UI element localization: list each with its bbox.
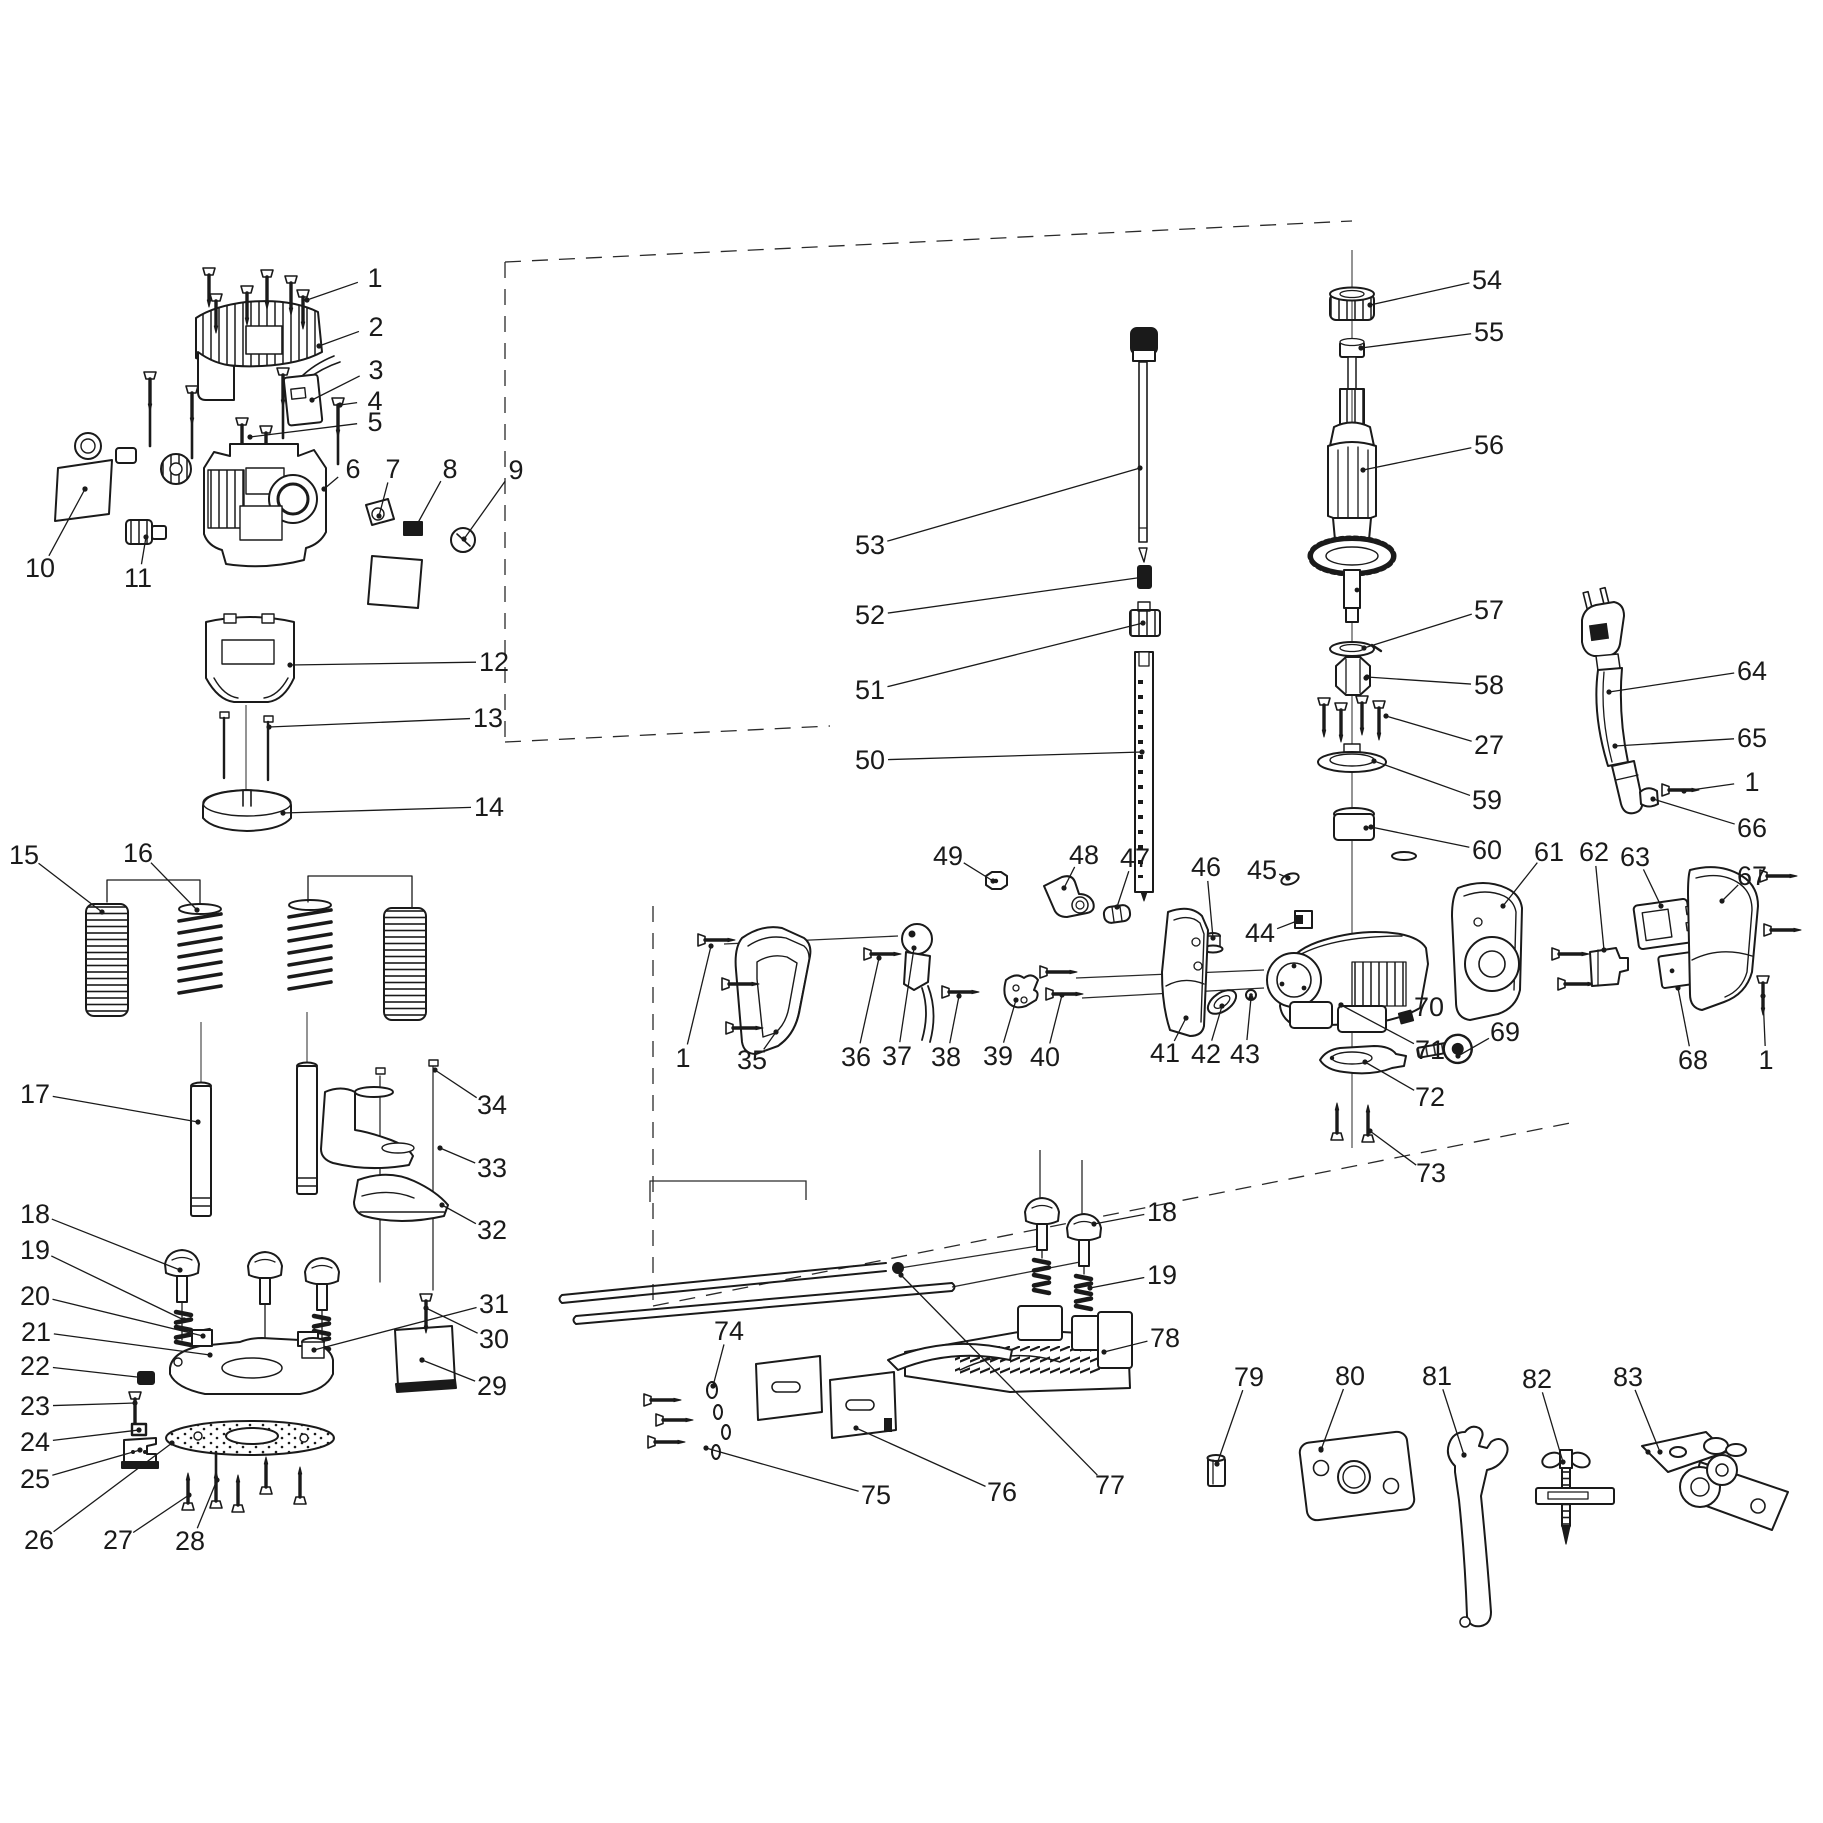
part-cord-clamp-66	[1640, 784, 1699, 807]
callout-dot-13-12	[266, 724, 271, 729]
callout-leader-66-68	[1653, 799, 1735, 824]
callout-dot-24-23	[136, 1427, 141, 1432]
callout-dot-54-54	[1367, 302, 1372, 307]
callout-label-72-75: 72	[1415, 1082, 1445, 1112]
callout-leader-1-67	[1684, 784, 1734, 791]
callout-dot-79-84	[1214, 1461, 1219, 1466]
callout-dot-80-85	[1318, 1447, 1323, 1452]
motor-top-assembly	[55, 268, 475, 831]
part-depth-rod	[1131, 328, 1157, 562]
part-power-cord	[1582, 588, 1642, 814]
callout-dot-62-63	[1601, 947, 1606, 952]
brush-parts	[366, 499, 475, 552]
callout-dot-81-86	[1461, 1452, 1466, 1457]
callout-label-77-83: 77	[1095, 1470, 1125, 1500]
part-spring-19d	[1076, 1276, 1091, 1309]
part-guide-body-78	[888, 1306, 1132, 1392]
callout-label-13-12: 13	[473, 703, 503, 733]
callout-dot-8-7	[411, 527, 416, 532]
part-clip-39	[1004, 975, 1038, 1007]
part-spring-15b	[384, 908, 426, 1020]
callout-leader-50-50	[888, 752, 1142, 760]
sub-base-screws	[182, 1452, 306, 1512]
callout-dot-60-61	[1368, 824, 1373, 829]
part-inner-handle-61	[1452, 883, 1522, 1020]
callout-dot-39-39	[1013, 997, 1018, 1002]
callout-dot-77-83	[898, 1272, 903, 1277]
callout-dot-76-82	[853, 1425, 858, 1430]
callout-leader-79-84	[1217, 1390, 1243, 1464]
callout-dot-9-8	[461, 536, 466, 541]
callout-leader-82-87	[1542, 1392, 1563, 1462]
callout-leader-64-65	[1609, 673, 1734, 692]
callout-label-27-26: 27	[103, 1525, 133, 1555]
callout-dot-26-25	[169, 1440, 174, 1445]
callout-dot-17-16	[195, 1119, 200, 1124]
callout-label-38-38: 38	[931, 1042, 961, 1072]
callout-dot-1-0	[304, 297, 309, 302]
callout-label-17-16: 17	[20, 1079, 50, 1109]
callout-leader-68-70	[1678, 988, 1689, 1046]
callout-leader-12-11	[290, 662, 476, 665]
callout-dot-42-42	[1219, 1003, 1224, 1008]
callout-leader-47-47	[1117, 871, 1129, 907]
callout-leader-51-51	[887, 623, 1143, 687]
callout-dot-19-18	[181, 1317, 186, 1322]
callout-dot-2-1	[316, 343, 321, 348]
callout-dot-48-48	[1061, 885, 1066, 890]
callout-label-2-1: 2	[368, 312, 383, 342]
callout-label-44-44: 44	[1245, 918, 1275, 948]
callout-dot-27-26	[186, 1492, 191, 1497]
callout-label-18-17: 18	[20, 1199, 50, 1229]
callout-label-15-14: 15	[9, 840, 39, 870]
callout-label-74-80: 74	[714, 1316, 744, 1346]
callout-dot-56-56	[1360, 467, 1365, 472]
callout-dot-40-40	[1059, 992, 1064, 997]
callout-dot-28-27	[214, 1477, 219, 1482]
callout-label-36-36: 36	[841, 1042, 871, 1072]
callout-leader-32-31	[442, 1205, 476, 1224]
callout-dot-44-44	[1294, 918, 1299, 923]
callout-label-64-65: 64	[1737, 656, 1767, 686]
callout-dot-25-24	[137, 1447, 142, 1452]
callout-dot-75-81	[703, 1445, 708, 1450]
callout-label-41-41: 41	[1150, 1038, 1180, 1068]
callout-dot-1-35	[708, 943, 713, 948]
callout-leader-19-78	[1090, 1277, 1144, 1288]
callout-label-68-70: 68	[1678, 1045, 1708, 1075]
callout-dot-1-67	[1681, 788, 1686, 793]
callout-label-8-7: 8	[442, 454, 457, 484]
callout-label-1-71: 1	[1758, 1045, 1773, 1075]
callout-label-45-45: 45	[1247, 855, 1277, 885]
part-bearing-60	[1334, 808, 1374, 840]
callout-label-65-66: 65	[1737, 723, 1767, 753]
callout-label-59-60: 59	[1472, 785, 1502, 815]
callout-leader-27-59	[1386, 716, 1472, 741]
callout-dot-72-75	[1362, 1059, 1367, 1064]
callout-dot-53-53	[1137, 465, 1142, 470]
callout-label-19-18: 19	[20, 1235, 50, 1265]
part-dust-chute-lower	[354, 1175, 448, 1221]
callout-label-33-32: 33	[477, 1153, 507, 1183]
callout-dot-68-70	[1675, 985, 1680, 990]
callout-label-9-8: 9	[508, 455, 523, 485]
callout-label-20-19: 20	[20, 1281, 50, 1311]
callout-dot-70-73	[1404, 1013, 1409, 1018]
part-screw-36	[864, 948, 901, 960]
part-block-62	[1590, 948, 1628, 986]
accessories	[1208, 1427, 1789, 1627]
callout-leader-74-80	[713, 1344, 724, 1386]
part-nut-49	[986, 872, 1007, 889]
callout-dot-78-79	[1101, 1349, 1106, 1354]
callout-label-32-31: 32	[477, 1215, 507, 1245]
callout-label-67-69: 67	[1737, 861, 1767, 891]
part-base-casting	[170, 1330, 333, 1394]
callout-leader-18-77	[1094, 1214, 1144, 1224]
callout-dot-29-28	[419, 1357, 424, 1362]
callout-leader-56-56	[1363, 448, 1471, 470]
part-trammel-82	[1536, 1450, 1614, 1544]
callout-dot-65-66	[1612, 743, 1617, 748]
callout-dot-67-69	[1719, 898, 1724, 903]
callout-dot-38-38	[956, 993, 961, 998]
part-handle-left-35	[736, 927, 811, 1054]
callout-leader-52-52	[888, 577, 1144, 613]
callout-label-16-15: 16	[123, 838, 153, 868]
callout-dot-58-58	[1364, 674, 1369, 679]
callout-leader-16-15	[151, 863, 197, 910]
callout-leader-22-21	[53, 1368, 146, 1378]
callout-label-56-56: 56	[1474, 430, 1504, 460]
callout-leader-54-54	[1370, 283, 1469, 305]
callout-dot-46-46	[1210, 935, 1215, 940]
callout-label-70-73: 70	[1414, 992, 1444, 1022]
callout-leader-75-81	[706, 1448, 859, 1491]
callout-label-35-34: 35	[737, 1045, 767, 1075]
callout-dot-71-74	[1338, 1002, 1343, 1007]
callout-label-51-51: 51	[855, 675, 885, 705]
callout-dot-1-71	[1760, 993, 1765, 998]
callout-dot-74-80	[710, 1383, 715, 1388]
callout-label-54-54: 54	[1472, 265, 1502, 295]
plunge-base-assembly	[86, 876, 456, 1512]
callout-label-27-59: 27	[1474, 730, 1504, 760]
callout-label-1-35: 1	[675, 1043, 690, 1073]
callout-leader-24-23	[53, 1430, 139, 1440]
callout-leader-18-17	[52, 1219, 180, 1270]
callout-leader-17-16	[53, 1096, 198, 1122]
callout-label-21-20: 21	[21, 1317, 51, 1347]
part-sub-base	[166, 1421, 334, 1455]
callout-dot-41-41	[1183, 1015, 1188, 1020]
callout-leader-62-63	[1596, 866, 1604, 950]
callout-dot-20-19	[200, 1333, 205, 1338]
callout-leader-65-66	[1615, 739, 1734, 746]
callout-leader-39-39	[1004, 1000, 1016, 1043]
exploded-diagram-page: 1234567891011121314151617181920212223242…	[0, 0, 1823, 1823]
part-screw-67b	[1764, 924, 1801, 936]
callout-dot-59-60	[1371, 758, 1376, 763]
part-fan-59	[1318, 744, 1386, 772]
callout-dot-18-17	[177, 1267, 182, 1272]
part-spring-15a	[86, 904, 128, 1016]
callout-label-55-55: 55	[1474, 317, 1504, 347]
callout-label-57-57: 57	[1474, 595, 1504, 625]
callout-label-47-47: 47	[1120, 843, 1150, 873]
callout-leader-36-36	[860, 958, 879, 1043]
callout-leader-49-49	[964, 863, 993, 881]
part-sleeve-79	[1208, 1455, 1226, 1486]
callout-dot-61-62	[1500, 903, 1505, 908]
callout-dot-19-78	[1087, 1285, 1092, 1290]
callout-leader-38-38	[950, 996, 959, 1043]
callout-dot-5-4	[247, 434, 252, 439]
callout-label-19-78: 19	[1147, 1260, 1177, 1290]
callout-label-73-76: 73	[1416, 1158, 1446, 1188]
callout-leader-2-1	[319, 331, 359, 346]
callout-label-3-2: 3	[368, 355, 383, 385]
callout-leader-73-76	[1370, 1131, 1416, 1165]
callout-dot-15-14	[99, 909, 104, 914]
part-fence-plates-76	[756, 1356, 896, 1438]
part-columns-17	[191, 1063, 317, 1217]
callout-leader-14-13	[283, 807, 471, 813]
callout-label-34-33: 34	[477, 1090, 507, 1120]
callout-label-1-0: 1	[367, 263, 382, 293]
callout-label-52-52: 52	[855, 600, 885, 630]
callout-label-37-37: 37	[882, 1041, 912, 1071]
callout-dot-11-10	[143, 534, 148, 539]
part-speed-dial-37	[902, 924, 934, 1042]
guide-screws-75	[644, 1382, 730, 1459]
handle-61-screws	[1552, 948, 1595, 990]
callout-label-23-22: 23	[20, 1391, 50, 1421]
callout-dot-63-64	[1658, 903, 1663, 908]
part-spring-19c	[1034, 1260, 1049, 1293]
callout-dot-7-6	[376, 513, 381, 518]
callout-label-1-67: 1	[1744, 767, 1759, 797]
callout-leader-60-61	[1371, 827, 1469, 847]
part-cam-72	[1320, 1046, 1406, 1073]
callout-dot-21-20	[207, 1352, 212, 1357]
callout-dot-47-47	[1114, 904, 1119, 909]
callout-label-66-68: 66	[1737, 813, 1767, 843]
callout-dot-66-68	[1650, 796, 1655, 801]
callout-dot-22-21	[143, 1375, 148, 1380]
callout-label-50-50: 50	[855, 745, 885, 775]
callout-dot-82-87	[1560, 1459, 1565, 1464]
callout-dot-16-15	[194, 907, 199, 912]
part-roller-guide-83	[1642, 1432, 1788, 1530]
callout-leader-1-35	[687, 946, 711, 1044]
callout-label-78-79: 78	[1150, 1323, 1180, 1353]
callout-dot-33-32	[437, 1145, 442, 1150]
callout-label-14-13: 14	[474, 792, 504, 822]
callout-label-25-24: 25	[20, 1464, 50, 1494]
part-washer-57	[1330, 642, 1381, 656]
part-nut-51	[1130, 602, 1160, 636]
callout-label-11-10: 11	[124, 563, 152, 593]
callout-leader-1-0	[307, 282, 358, 300]
callout-label-58-58: 58	[1474, 670, 1504, 700]
callout-dot-35-34	[773, 1029, 778, 1034]
callout-dot-49-49	[990, 878, 995, 883]
callout-label-29-28: 29	[477, 1371, 507, 1401]
router-exploded-parts-diagram: 1234567891011121314151617181920212223242…	[0, 0, 1823, 1823]
callout-dot-4-3	[337, 402, 342, 407]
callout-leader-76-82	[856, 1428, 986, 1486]
callout-label-76-82: 76	[987, 1477, 1017, 1507]
callout-dot-31-30	[311, 1347, 316, 1352]
callout-label-30-29: 30	[479, 1324, 509, 1354]
part-plate-29	[395, 1326, 456, 1392]
callout-label-49-49: 49	[933, 841, 963, 871]
callout-leader-34-33	[435, 1070, 477, 1098]
callout-label-26-25: 26	[24, 1525, 54, 1555]
callout-leader-63-64	[1643, 869, 1661, 906]
callout-leader-58-58	[1367, 677, 1471, 684]
callout-label-83-88: 83	[1613, 1362, 1643, 1392]
callout-label-18-77: 18	[1147, 1197, 1177, 1227]
callout-label-24-23: 24	[20, 1427, 50, 1457]
callout-label-48-48: 48	[1069, 840, 1099, 870]
callout-dot-14-13	[280, 810, 285, 815]
callout-dot-27-59	[1383, 713, 1388, 718]
callout-leader-59-60	[1374, 761, 1470, 795]
callout-label-5-4: 5	[367, 407, 382, 437]
callout-label-22-21: 22	[20, 1351, 50, 1381]
callout-dot-30-29	[423, 1305, 428, 1310]
callout-dot-23-22	[132, 1400, 137, 1405]
callout-dot-37-37	[911, 945, 916, 950]
callout-dot-18-77	[1091, 1221, 1096, 1226]
callout-leader-33-32	[440, 1148, 475, 1163]
callout-label-60-61: 60	[1472, 835, 1502, 865]
callout-dot-64-65	[1606, 689, 1611, 694]
part-guide-rods-77	[560, 1262, 955, 1324]
callout-label-53-53: 53	[855, 530, 885, 560]
callout-label-10-9: 10	[25, 553, 55, 583]
callout-dot-43-43	[1248, 995, 1253, 1000]
callout-leader-19-18	[51, 1256, 184, 1320]
callout-label-80-85: 80	[1335, 1361, 1365, 1391]
callout-dot-73-76	[1367, 1128, 1372, 1133]
callout-dot-12-11	[287, 662, 292, 667]
part-sticker-right	[368, 556, 422, 608]
part-stator	[206, 614, 294, 702]
callout-dot-83-88	[1657, 1449, 1662, 1454]
callout-label-43-43: 43	[1230, 1039, 1260, 1069]
callout-leader-55-55	[1361, 334, 1471, 348]
callout-label-40-40: 40	[1030, 1042, 1060, 1072]
callout-leader-53-53	[887, 468, 1140, 541]
part-spring-16a	[179, 904, 221, 993]
callout-label-69-72: 69	[1490, 1017, 1520, 1047]
callout-leader-9-8	[464, 481, 505, 539]
callout-leader-83-88	[1635, 1390, 1660, 1452]
callout-leader-57-57	[1364, 614, 1472, 648]
callout-leader-15-14	[39, 863, 102, 912]
part-plate-80	[1299, 1431, 1416, 1522]
callout-label-63-64: 63	[1620, 842, 1650, 872]
callout-label-81-86: 81	[1422, 1361, 1452, 1391]
callout-label-12-11: 12	[479, 647, 509, 677]
callout-label-61-62: 61	[1534, 837, 1564, 867]
callout-label-28-27: 28	[175, 1526, 205, 1556]
callout-leader-8-7	[414, 481, 441, 530]
callout-label-7-6: 7	[385, 454, 400, 484]
callout-label-71-74: 71	[1415, 1035, 1445, 1065]
part-clamp-ring	[203, 790, 291, 831]
callout-label-46-46: 46	[1191, 852, 1221, 882]
part-wrench-81	[1448, 1427, 1508, 1627]
callout-dot-45-45	[1285, 875, 1290, 880]
callout-leader-23-22	[53, 1403, 135, 1406]
part-oring	[1392, 852, 1416, 860]
callout-leader-43-43	[1247, 998, 1251, 1040]
callout-dot-52-52	[1141, 574, 1146, 579]
callout-dot-55-55	[1358, 345, 1363, 350]
callout-label-82-87: 82	[1522, 1364, 1552, 1394]
callout-dot-36-36	[876, 955, 881, 960]
callout-dot-57-57	[1361, 645, 1366, 650]
callout-label-6-5: 6	[345, 454, 360, 484]
callout-leader-40-40	[1050, 995, 1062, 1043]
callout-dot-10-9	[82, 486, 87, 491]
callout-dot-34-33	[432, 1067, 437, 1072]
part-bearing-54	[1330, 288, 1374, 321]
callout-dot-51-51	[1140, 620, 1145, 625]
callout-dot-32-31	[439, 1202, 444, 1207]
callout-label-79-84: 79	[1234, 1362, 1264, 1392]
edge-guide-assembly	[560, 1198, 1133, 1459]
callout-label-39-39: 39	[983, 1041, 1013, 1071]
callout-label-62-63: 62	[1579, 837, 1609, 867]
part-spring-16b	[289, 900, 331, 989]
part-armature-56	[1312, 357, 1392, 622]
callout-label-42-42: 42	[1191, 1039, 1221, 1069]
callout-label-75-81: 75	[861, 1480, 891, 1510]
callout-leader-13-12	[269, 719, 470, 727]
callout-label-31-30: 31	[479, 1289, 509, 1319]
callout-dot-3-2	[309, 397, 314, 402]
callout-dot-6-5	[321, 486, 326, 491]
callout-dot-69-72	[1455, 1053, 1460, 1058]
part-lock-lever-48	[1044, 876, 1094, 917]
part-motor-housing	[204, 444, 326, 566]
callout-dot-50-50	[1139, 749, 1144, 754]
